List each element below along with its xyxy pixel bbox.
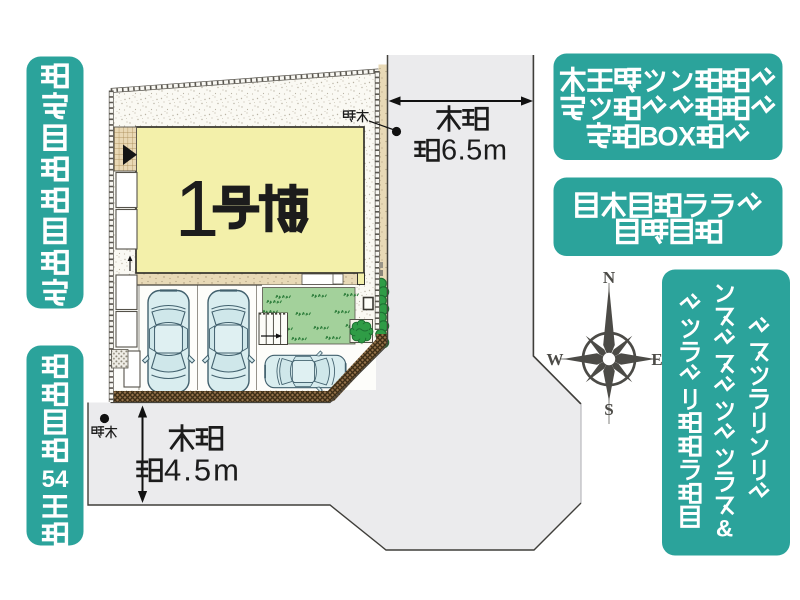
svg-text:54: 54 [42, 466, 69, 493]
svg-text:6.5m: 6.5m [441, 135, 507, 167]
svg-text:N: N [603, 268, 616, 287]
svg-text:&: & [716, 516, 733, 543]
svg-text:O: O [657, 122, 678, 152]
svg-text:W: W [547, 350, 564, 369]
svg-text:1: 1 [175, 164, 220, 253]
svg-text:E: E [651, 350, 662, 369]
svg-text:X: X [678, 122, 696, 152]
svg-text:B: B [639, 122, 659, 152]
svg-text:S: S [604, 400, 613, 419]
svg-text:4.5m: 4.5m [164, 453, 241, 488]
